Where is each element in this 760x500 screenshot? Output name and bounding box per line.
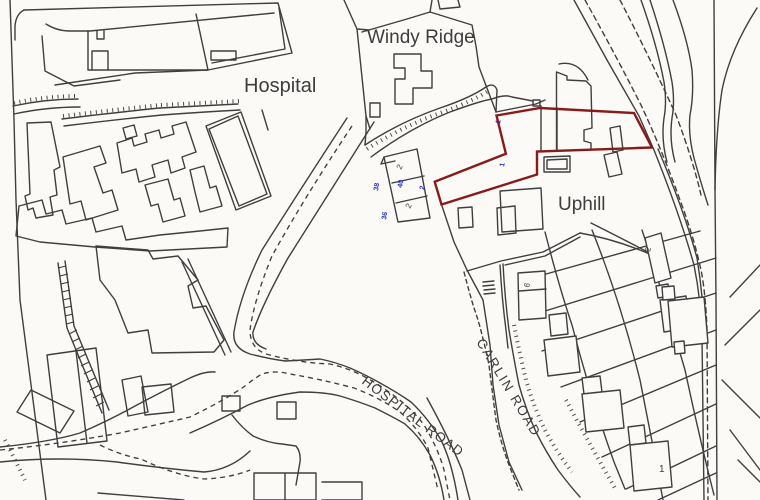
svg-text:36: 36: [381, 211, 389, 220]
svg-text:38: 38: [373, 182, 381, 191]
svg-text:Uphill: Uphill: [558, 194, 606, 215]
svg-text:Hospital: Hospital: [244, 75, 316, 97]
svg-text:Windy Ridge: Windy Ridge: [367, 27, 475, 48]
svg-text:1: 1: [659, 464, 665, 475]
svg-text:40: 40: [397, 179, 405, 188]
